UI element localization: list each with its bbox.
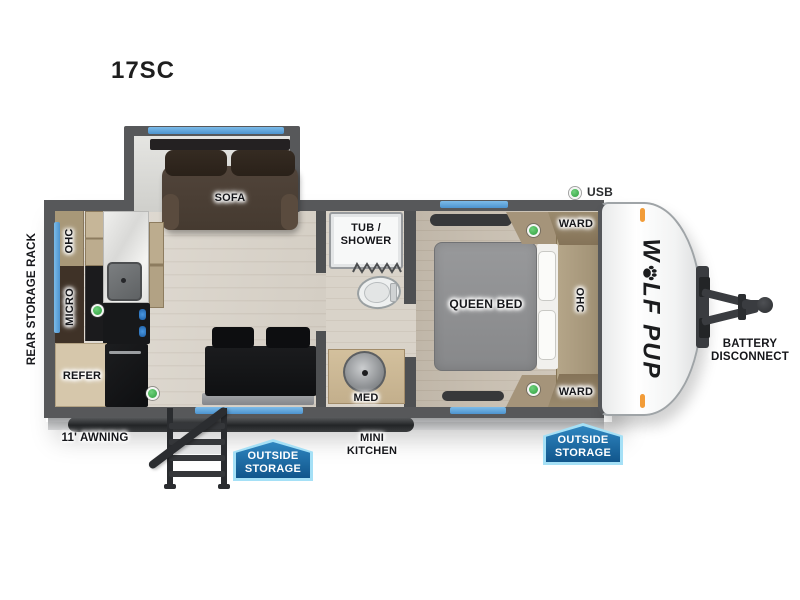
mini-kitchen-label-line1: MINI bbox=[338, 432, 406, 444]
refer-label: REFER bbox=[56, 370, 108, 382]
stove-burner-1 bbox=[139, 309, 146, 320]
pillow-bottom bbox=[538, 310, 556, 360]
med-label: MED bbox=[340, 392, 392, 404]
sofa-back-cushion-left bbox=[165, 150, 227, 176]
rear-window bbox=[54, 222, 60, 333]
battery-disconnect-label-line1: BATTERY bbox=[704, 338, 796, 350]
pillow-top bbox=[538, 251, 556, 301]
sofa-back-shelf bbox=[150, 139, 290, 150]
bedroom-window-top bbox=[440, 201, 508, 208]
micro-label: MICRO bbox=[64, 288, 76, 326]
paw-icon bbox=[642, 264, 659, 281]
ward-bottom-label: WARD bbox=[548, 386, 604, 398]
outside-storage-right-text: OUTSIDE STORAGE bbox=[543, 434, 623, 460]
usb-dot-entry bbox=[146, 387, 159, 400]
entry-door-window bbox=[195, 407, 303, 414]
sofa-back-cushion-right bbox=[231, 150, 295, 176]
queen-bed-label: QUEEN BED bbox=[436, 298, 536, 310]
logo-first-letter: W bbox=[636, 239, 664, 264]
bench-headrest-right bbox=[266, 327, 310, 348]
outside-storage-left-line2: STORAGE bbox=[233, 463, 313, 476]
bath-wall-right-lower bbox=[404, 357, 416, 407]
bedroom-ohc-label-box: OHC bbox=[560, 268, 600, 332]
rear-storage-rack-label-box: REAR STORAGE RACK bbox=[14, 228, 50, 370]
slideout-window bbox=[148, 127, 284, 134]
toilet-tank bbox=[390, 283, 397, 302]
ward-top-label: WARD bbox=[548, 218, 604, 230]
bedroom-window-shade-bottom bbox=[442, 391, 504, 401]
mini-kitchen-label-line2: KITCHEN bbox=[338, 445, 406, 457]
bedroom-window-bottom bbox=[450, 407, 506, 414]
outside-storage-right-line2: STORAGE bbox=[543, 447, 623, 460]
sofa-arm-left bbox=[162, 194, 179, 230]
outside-storage-right-line1: OUTSIDE bbox=[543, 434, 623, 447]
outside-storage-left-line1: OUTSIDE bbox=[233, 450, 313, 463]
usb-dot-bedroom-bottom bbox=[527, 383, 540, 396]
outside-storage-badge-left: OUTSIDE STORAGE bbox=[233, 439, 313, 481]
kitchen-ohc-label: OHC bbox=[63, 228, 75, 253]
bath-wall-left-lower bbox=[316, 331, 326, 407]
fridge-handle bbox=[109, 351, 141, 354]
usb-legend-label: USB bbox=[587, 186, 617, 198]
battery-disconnect-label-line2: DISCONNECT bbox=[704, 351, 796, 363]
bedroom-window-shade-top bbox=[430, 214, 512, 226]
bedroom-ohc-label: OHC bbox=[574, 287, 586, 312]
awning-label: 11' AWNING bbox=[55, 432, 135, 444]
sofa-arm-right bbox=[281, 194, 298, 230]
usb-legend-dot bbox=[569, 187, 581, 199]
floorplan-canvas: 17SC SOFA OHC MICRO REFER bbox=[0, 0, 800, 600]
step-rung-3 bbox=[169, 455, 225, 461]
bath-wall-right-upper bbox=[404, 211, 416, 304]
step-foot-right bbox=[218, 484, 230, 489]
page-title: 17SC bbox=[108, 58, 178, 84]
shower-door-icon bbox=[352, 262, 402, 274]
tub-shower-label-line2: SHOWER bbox=[329, 235, 403, 247]
step-foot-left bbox=[164, 484, 176, 489]
wolfpup-logo: W LF PUP bbox=[636, 239, 664, 380]
med-sink-drain bbox=[362, 370, 368, 376]
rear-storage-rack-label: REAR STORAGE RACK bbox=[26, 233, 38, 365]
hitch-coupler-knob bbox=[757, 297, 773, 313]
outside-storage-left-text: OUTSIDE STORAGE bbox=[233, 450, 313, 476]
stove-burner-2 bbox=[139, 326, 146, 337]
kitchen-side-cabinets bbox=[149, 222, 164, 308]
bench-seat bbox=[205, 346, 317, 396]
logo-rest: LF PUP bbox=[636, 282, 664, 379]
awning-tube bbox=[68, 417, 414, 432]
step-rung-4 bbox=[169, 471, 225, 477]
sofa-label: SOFA bbox=[198, 192, 262, 204]
usb-dot-bedroom-top bbox=[527, 224, 540, 237]
bath-wall-left-upper bbox=[316, 211, 326, 273]
tub-shower-label-line1: TUB / bbox=[329, 222, 403, 234]
sink-faucet bbox=[121, 278, 126, 283]
usb-dot-kitchen bbox=[91, 304, 104, 317]
bench-headrest-left bbox=[212, 327, 254, 348]
wolfpup-logo-box: W LF PUP bbox=[598, 202, 702, 416]
